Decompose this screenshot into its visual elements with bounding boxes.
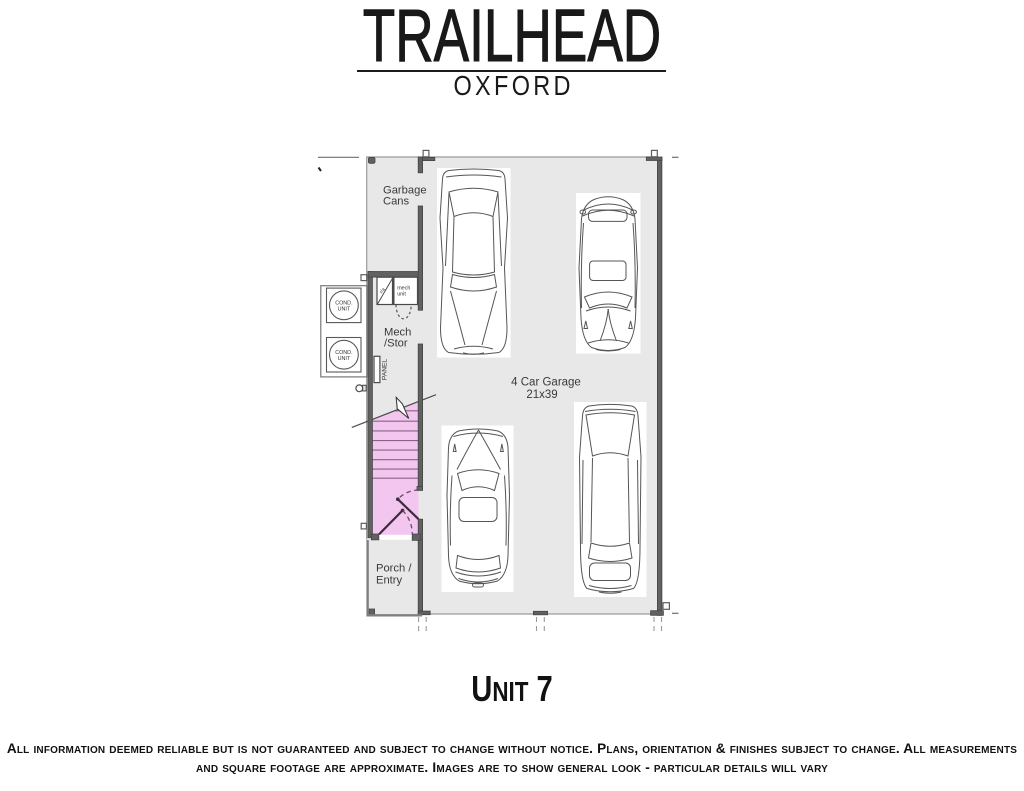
svg-text:21x39: 21x39	[526, 389, 557, 401]
svg-text:COND.: COND.	[335, 350, 352, 356]
svg-text:PANEL: PANEL	[381, 359, 388, 380]
svg-text:COND.: COND.	[335, 300, 352, 306]
svg-text:Porch /: Porch /	[376, 563, 412, 575]
svg-text:Entry: Entry	[376, 575, 403, 587]
svg-text:Cans: Cans	[383, 196, 410, 208]
svg-text:unit: unit	[397, 292, 406, 298]
svg-text:UNIT: UNIT	[338, 307, 351, 313]
svg-text:/Stor: /Stor	[384, 338, 408, 350]
svg-text:UNIT: UNIT	[338, 356, 351, 362]
svg-text:4 Car Garage: 4 Car Garage	[511, 377, 581, 389]
svg-text:mech: mech	[397, 285, 410, 291]
